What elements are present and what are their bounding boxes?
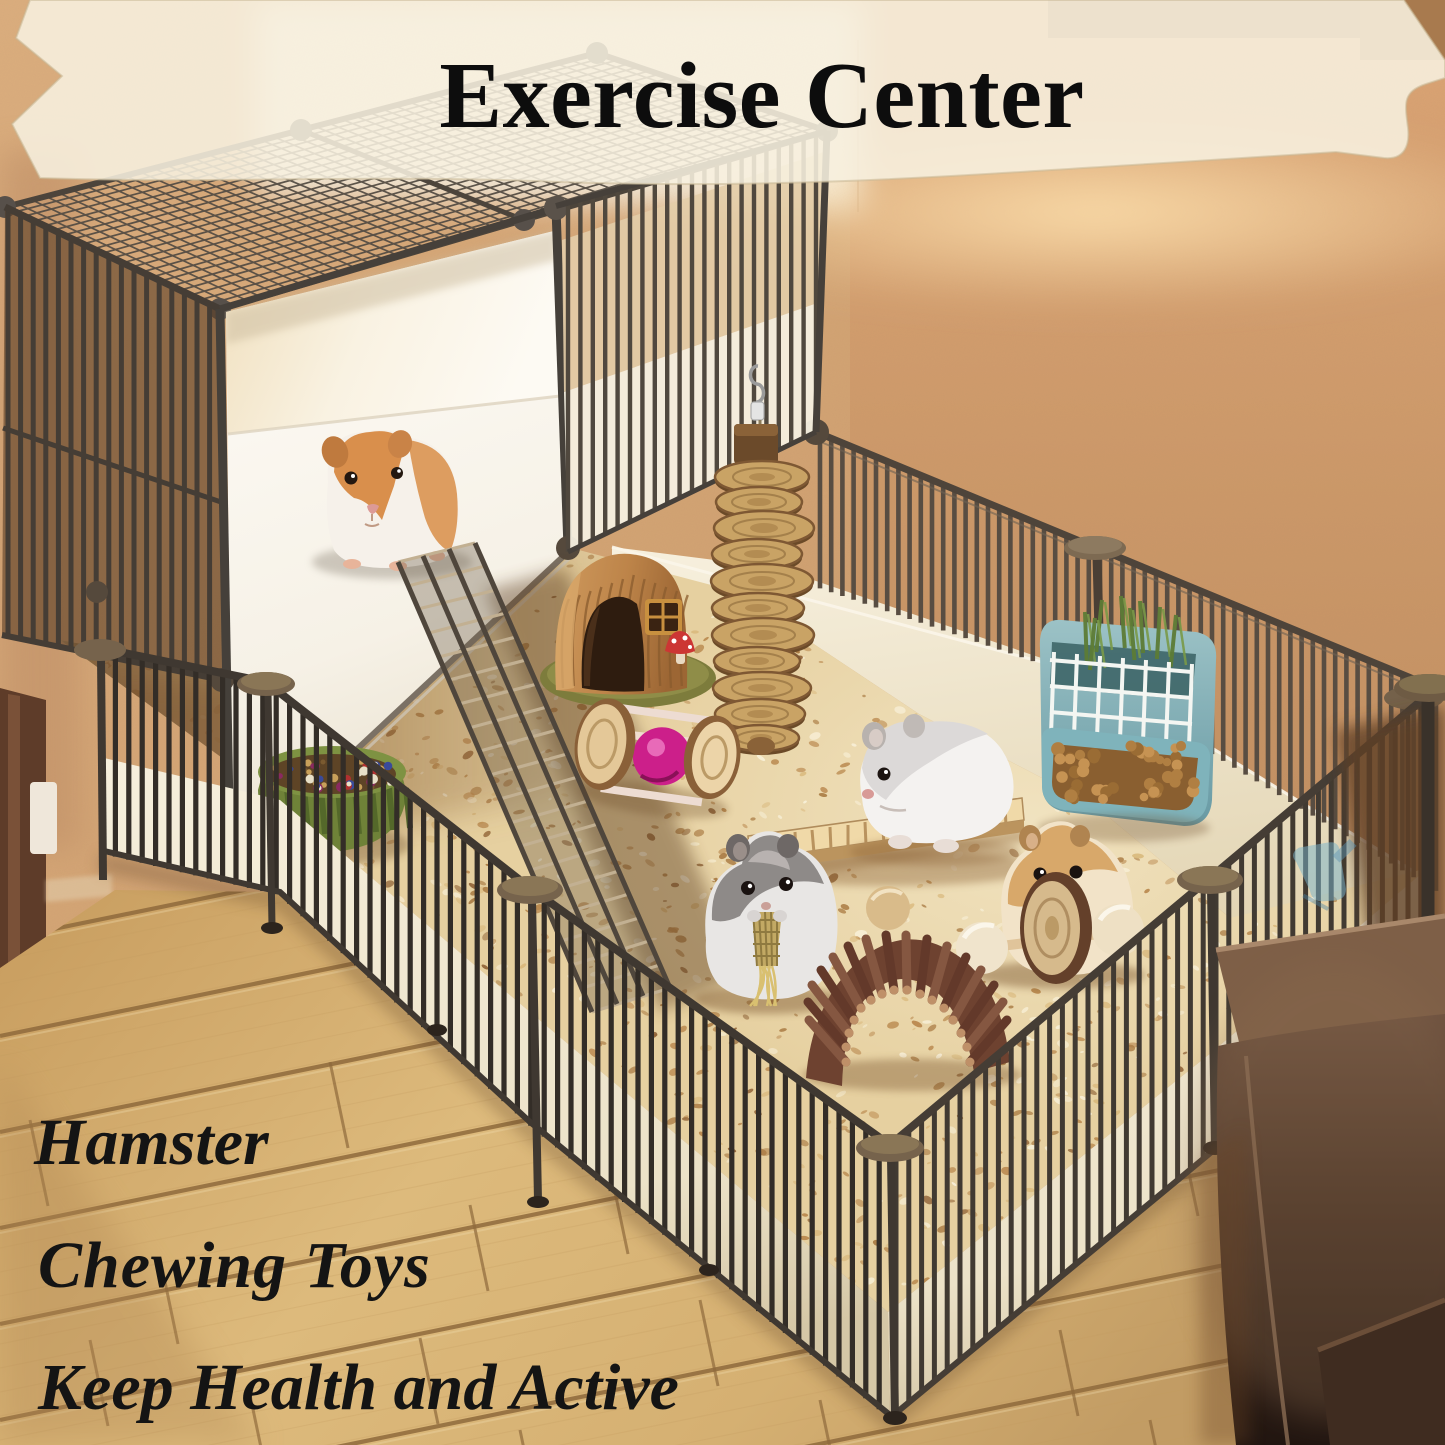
svg-text:Hamster: Hamster [33,1106,270,1179]
svg-text:Keep Health and Active: Keep Health and Active [37,1351,679,1424]
svg-text:Chewing Toys: Chewing Toys [38,1229,431,1302]
svg-text:Exercise Center: Exercise Center [439,44,1084,148]
